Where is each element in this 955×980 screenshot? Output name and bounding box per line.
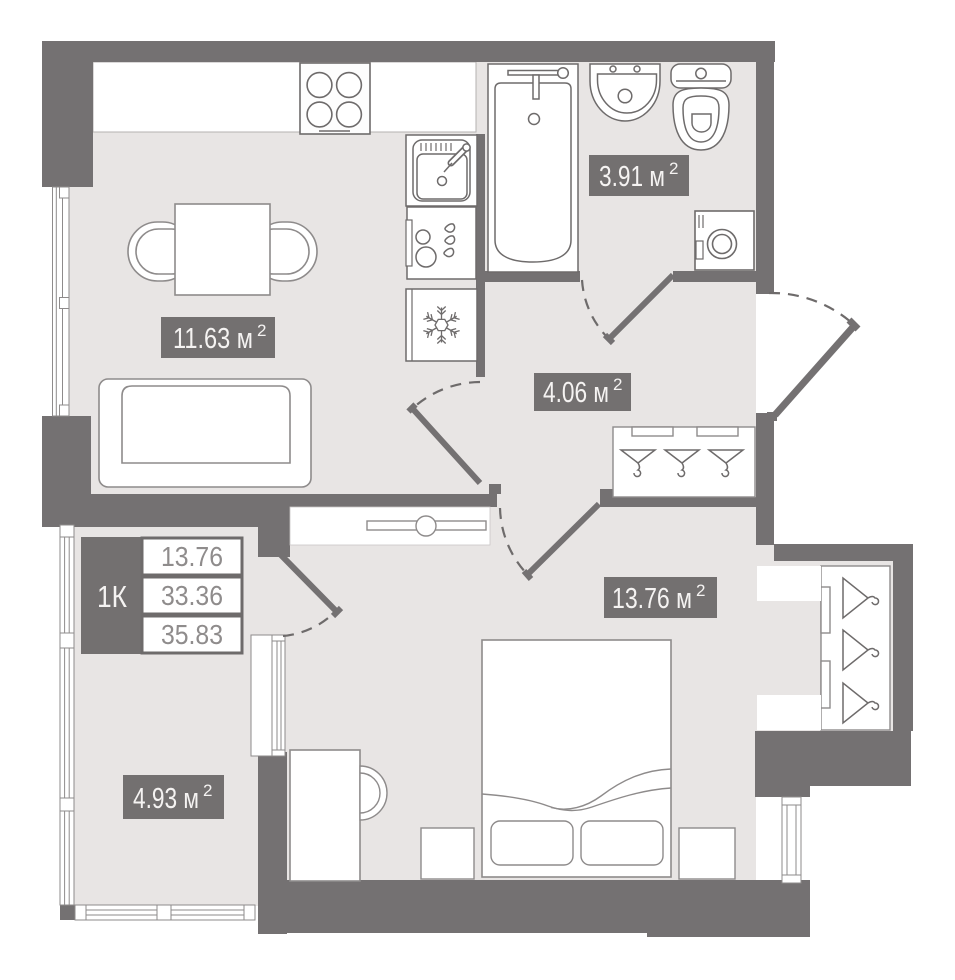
svg-text:13.76: 13.76 [161, 541, 223, 572]
svg-text:33.36: 33.36 [161, 580, 223, 611]
svg-text:2: 2 [696, 581, 705, 600]
svg-text:4.93 м: 4.93 м [133, 783, 199, 815]
svg-text:2: 2 [203, 781, 212, 800]
svg-text:2: 2 [613, 375, 622, 394]
svg-text:35.83: 35.83 [161, 619, 223, 650]
svg-text:2: 2 [257, 321, 266, 340]
svg-text:2: 2 [669, 159, 678, 178]
svg-text:13.76 м: 13.76 м [612, 583, 692, 615]
svg-text:1К: 1К [97, 579, 127, 614]
svg-text:3.91 м: 3.91 м [599, 161, 665, 193]
svg-text:4.06 м: 4.06 м [543, 377, 609, 409]
svg-text:11.63 м: 11.63 м [173, 323, 253, 355]
